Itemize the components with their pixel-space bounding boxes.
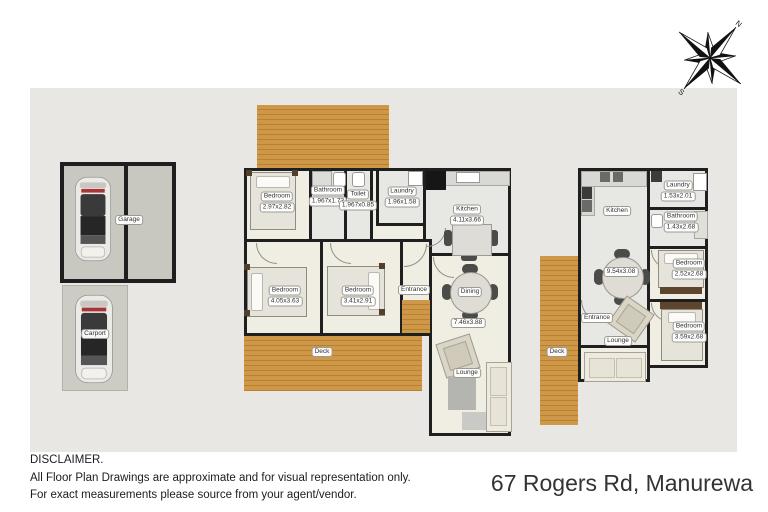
main-kitchen-label: Kitchen 4.11x3.66 (450, 205, 484, 226)
sofa (486, 362, 512, 432)
floor-mat (462, 412, 486, 430)
room-name: Bedroom (673, 322, 705, 332)
minor-kitchen-label: Kitchen (603, 206, 631, 216)
sofa-cushion (589, 358, 615, 378)
main-entrance-label: Entrance (398, 285, 430, 295)
room-dims: 2.52x2.68 (672, 270, 707, 280)
sofa-cushion (490, 367, 507, 396)
car-icon (71, 289, 117, 389)
minor-lounge-label: Lounge (604, 336, 632, 346)
bed-post (292, 170, 298, 176)
dresser (660, 287, 702, 294)
bed-post (244, 310, 250, 316)
main-toilet-label: Toilet 1.967x0.85 (339, 190, 377, 211)
entrance-steps (402, 300, 430, 333)
main-bedroom2-label: Bedroom 4.05x3.63 (268, 286, 303, 307)
room-name: Dining (458, 287, 482, 297)
bed-post (379, 263, 385, 269)
main-deck-label: Deck (312, 347, 333, 357)
room-dims: 1.96x1.58 (385, 198, 420, 208)
room-name: Bedroom (269, 286, 301, 296)
minor-laundry-label: Laundry 1.53x2.01 (661, 181, 696, 202)
room-name: Toilet (347, 190, 368, 200)
main-bedroom3-label: Bedroom 3.41x2.91 (341, 286, 376, 307)
sofa-cushion (490, 397, 507, 426)
carport-label: Carport (81, 329, 109, 339)
stove (582, 187, 592, 199)
room-dims: 1.43x2.68 (664, 223, 699, 233)
main-dining-label: Dining (458, 287, 482, 297)
toilet-fixture (651, 214, 663, 228)
room-dims: 1.967x0.85 (339, 201, 377, 211)
compass-south-label: S (677, 87, 687, 97)
room-name: Bedroom (342, 286, 374, 296)
room-name: Lounge (604, 336, 632, 346)
kitchen-table (452, 224, 492, 256)
main-deck (244, 336, 422, 391)
room-dims: 3.59x2.68 (672, 333, 707, 343)
main-dining-dims-label: 7.46x3.88 (451, 318, 486, 328)
minor-bathroom-label: Bathroom 1.43x2.68 (664, 212, 699, 233)
room-dims: 1.53x2.01 (661, 192, 696, 202)
room-name: Entrance (581, 313, 613, 323)
top-deck (257, 105, 389, 168)
armchair-cushion (616, 304, 647, 335)
room-dims: 3.41x2.91 (341, 297, 376, 307)
sink (456, 172, 480, 183)
dining-table (602, 257, 644, 299)
minor-kitchen-dims-label: 9.54x3.08 (604, 267, 639, 277)
room-name: Carport (81, 329, 109, 339)
room-name: Bedroom (261, 192, 293, 202)
sofa (584, 352, 646, 382)
compass-rose-icon: N S (662, 10, 758, 106)
main-laundry-label: Laundry 1.96x1.58 (385, 187, 420, 208)
room-name: Laundry (387, 187, 417, 197)
room-name: Bathroom (664, 212, 698, 222)
disclaimer-title: DISCLAIMER. (30, 452, 411, 470)
room-name: Laundry (663, 181, 693, 191)
bed-post (246, 170, 252, 176)
garage-label: Garage (115, 215, 143, 225)
room-dims: 7.46x3.88 (451, 318, 486, 328)
room-name: Kitchen (603, 206, 631, 216)
pillow (251, 273, 263, 311)
rug (448, 376, 476, 410)
minor-deck (540, 256, 578, 425)
headboard (660, 302, 702, 309)
minor-bedroom1-label: Bedroom 2.52x2.68 (672, 259, 707, 280)
main-bedroom1-label: Bedroom 2.97x2.82 (260, 192, 295, 213)
pillow (256, 176, 290, 188)
room-name: Kitchen (453, 205, 481, 215)
stove (426, 171, 446, 190)
room-name: Bedroom (673, 259, 705, 269)
minor-entrance-label: Entrance (581, 313, 613, 323)
room-name: Entrance (398, 285, 430, 295)
chair (444, 230, 452, 246)
sink (600, 172, 610, 182)
toilet-fixture (352, 172, 365, 187)
room-dims: 4.05x3.63 (268, 297, 303, 307)
property-address: 67 Rogers Rd, Manurewa (491, 470, 753, 497)
minor-bedroom2-label: Bedroom 3.59x2.68 (672, 322, 707, 343)
armchair-cushion (443, 341, 473, 371)
room-dims: 2.97x2.82 (260, 203, 295, 213)
room-name: Lounge (453, 368, 481, 378)
floor-plan-sheet: N S Garage Carport Deck Deck (0, 0, 768, 512)
minor-deck-label: Deck (547, 347, 568, 357)
room-name: Deck (547, 347, 568, 357)
washing-machine (408, 171, 423, 186)
bed-post (379, 309, 385, 315)
bed-post (244, 264, 250, 270)
main-lounge-label: Lounge (453, 368, 481, 378)
fridge (582, 200, 592, 212)
room-name: Garage (115, 215, 143, 225)
sofa-cushion (616, 358, 642, 378)
room-dims: 4.11x3.66 (450, 216, 484, 226)
room-name: Deck (312, 347, 333, 357)
disclaimer-block: DISCLAIMER. All Floor Plan Drawings are … (30, 452, 411, 505)
sink (613, 172, 623, 182)
room-dims: 9.54x3.08 (604, 267, 639, 277)
disclaimer-line1: All Floor Plan Drawings are approximate … (30, 470, 411, 488)
car-icon (71, 168, 115, 270)
disclaimer-line2: For exact measurements please source fro… (30, 487, 411, 505)
